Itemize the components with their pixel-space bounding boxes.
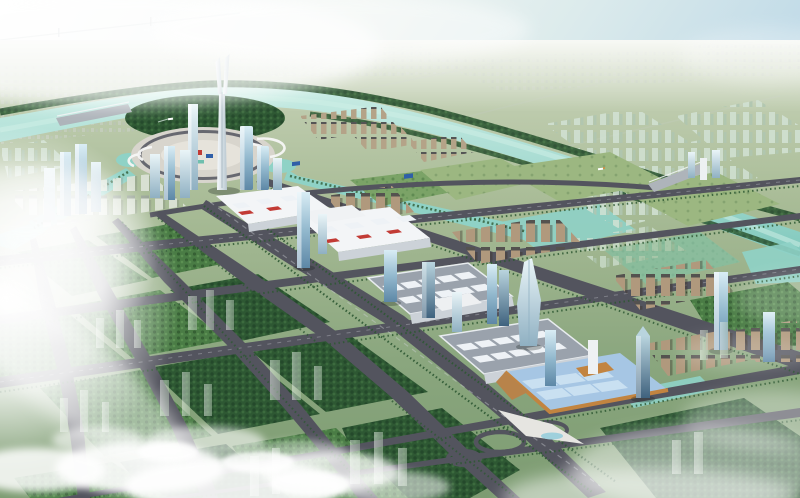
ghost-tower xyxy=(270,360,280,400)
tower xyxy=(545,330,556,386)
cloud-puff xyxy=(222,451,294,473)
tower xyxy=(273,158,282,190)
ghost-tower xyxy=(292,352,301,400)
tower xyxy=(499,270,509,326)
fountain-pool xyxy=(541,433,563,440)
plaza-pavilion xyxy=(198,160,204,164)
tower xyxy=(487,264,497,324)
tower xyxy=(164,146,175,200)
ghost-tower xyxy=(204,384,212,416)
ghost-tower xyxy=(182,372,190,416)
ghost-tower xyxy=(226,300,234,330)
tower xyxy=(257,146,269,190)
tower xyxy=(180,150,190,198)
tower xyxy=(422,262,435,318)
city-rendering xyxy=(0,0,800,498)
ghost-tower xyxy=(206,290,214,330)
cloud-puff xyxy=(138,442,198,462)
tower xyxy=(318,214,327,254)
ghost-tower xyxy=(314,366,322,400)
tower xyxy=(452,292,462,332)
ghost-tower xyxy=(188,296,197,330)
tower xyxy=(240,126,253,190)
cloud-puff xyxy=(270,472,350,496)
rendering-stage xyxy=(0,0,800,498)
cloud xyxy=(52,426,144,454)
tower xyxy=(588,340,598,374)
tower xyxy=(150,154,160,198)
plaza-pavilion xyxy=(206,154,213,158)
